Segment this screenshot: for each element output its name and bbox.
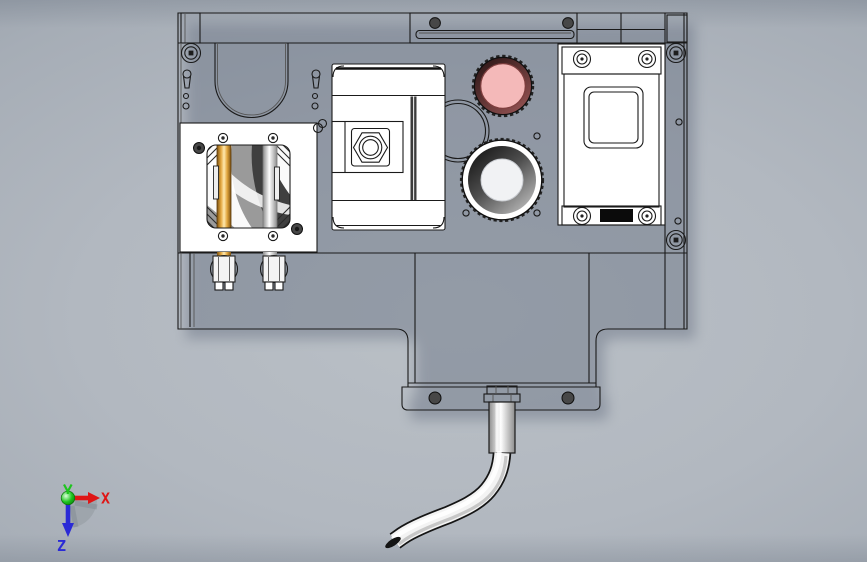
window-slot xyxy=(275,167,280,200)
lens-glass xyxy=(481,159,523,201)
center-bracket-plate[interactable] xyxy=(319,64,446,230)
panel-black-port[interactable] xyxy=(600,209,633,222)
corner-socket-screw[interactable] xyxy=(667,44,686,63)
pink-glass xyxy=(481,64,526,109)
flange-screw[interactable] xyxy=(562,392,574,404)
triad-x-label: X xyxy=(101,490,110,508)
flange-screw[interactable] xyxy=(429,392,441,404)
corner-socket-screw[interactable] xyxy=(182,44,201,63)
tab-screw[interactable] xyxy=(430,18,441,29)
tab-screw[interactable] xyxy=(563,18,574,29)
cad-viewport[interactable]: X Z xyxy=(0,0,867,562)
triad-z-label: Z xyxy=(57,537,66,555)
orientation-triad: X Z xyxy=(57,485,110,556)
gold-shaft xyxy=(217,145,231,228)
model-canvas[interactable]: X Z xyxy=(0,0,867,562)
triad-origin-ball xyxy=(61,485,75,505)
window-slot xyxy=(214,166,219,199)
power-cable[interactable] xyxy=(384,451,506,550)
corner-socket-screw[interactable] xyxy=(667,231,686,250)
right-connector-panel[interactable] xyxy=(558,44,665,225)
optics-window-scene xyxy=(207,145,290,228)
